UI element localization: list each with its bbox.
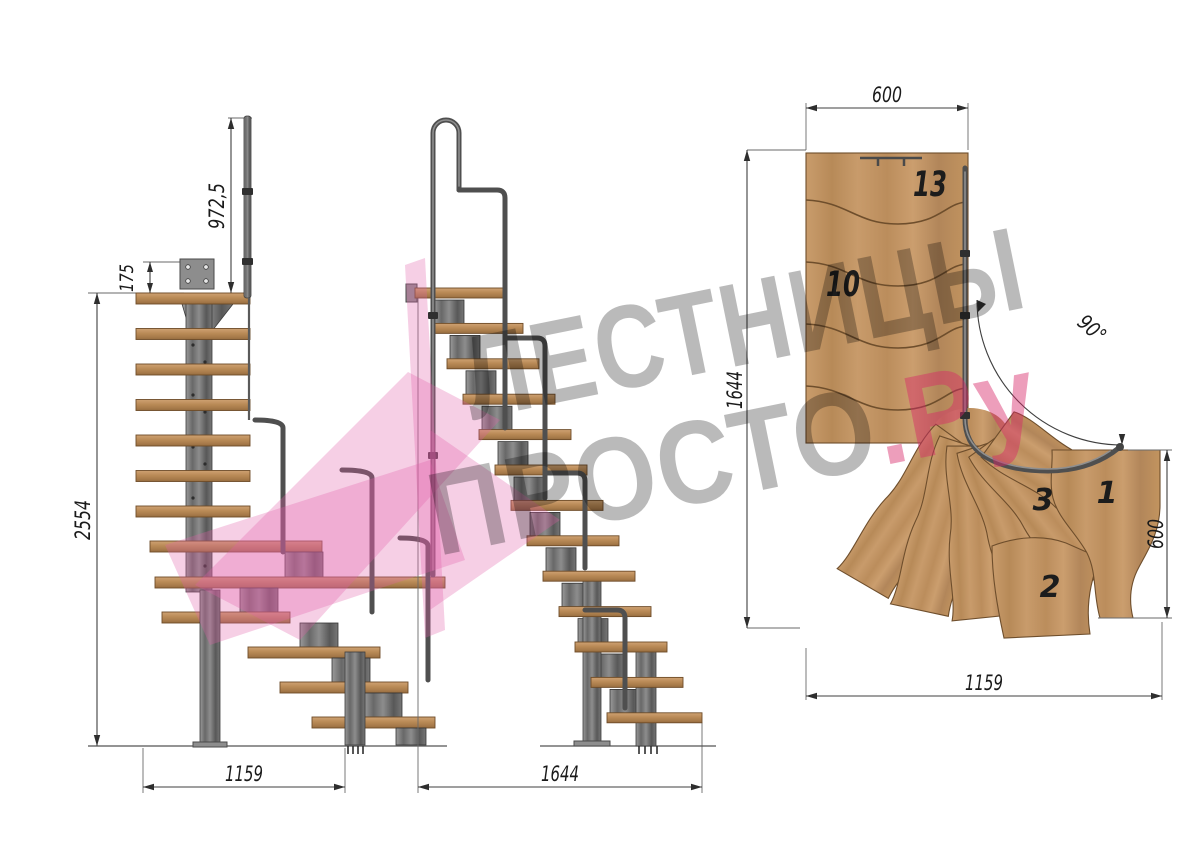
step-label-2: 2	[1040, 570, 1061, 605]
staircase-drawing-page: 972,5 175 2554 1159	[0, 0, 1200, 849]
dim-turn-angle: 90°	[1073, 310, 1111, 348]
dim-front-plate-offset: 175	[116, 264, 138, 292]
step-label-13: 13	[913, 165, 947, 205]
anchor-bolts	[639, 746, 657, 754]
front-rail-post	[244, 116, 251, 298]
dim-front-footprint-width: 1159	[225, 762, 263, 786]
step-label-3: 3	[1033, 483, 1054, 518]
anchor-bolts	[348, 746, 363, 754]
top-mount-plate	[180, 259, 214, 289]
dim-plan-lower-depth: 600	[1144, 519, 1168, 549]
side-end-support	[636, 645, 656, 746]
dim-front-rail-height: 972,5	[205, 183, 229, 229]
dim-plan-lower-length: 1159	[965, 671, 1003, 695]
dim-front-total-height: 2554	[71, 500, 95, 540]
dim-side-total-length: 1644	[541, 762, 579, 786]
staircase-technical-drawing: 972,5 175 2554 1159	[0, 0, 1200, 849]
side-support-column	[583, 572, 601, 742]
step-label-1: 1	[1097, 476, 1118, 511]
front-end-support	[345, 652, 365, 745]
dim-plan-flight-width: 600	[872, 83, 902, 107]
